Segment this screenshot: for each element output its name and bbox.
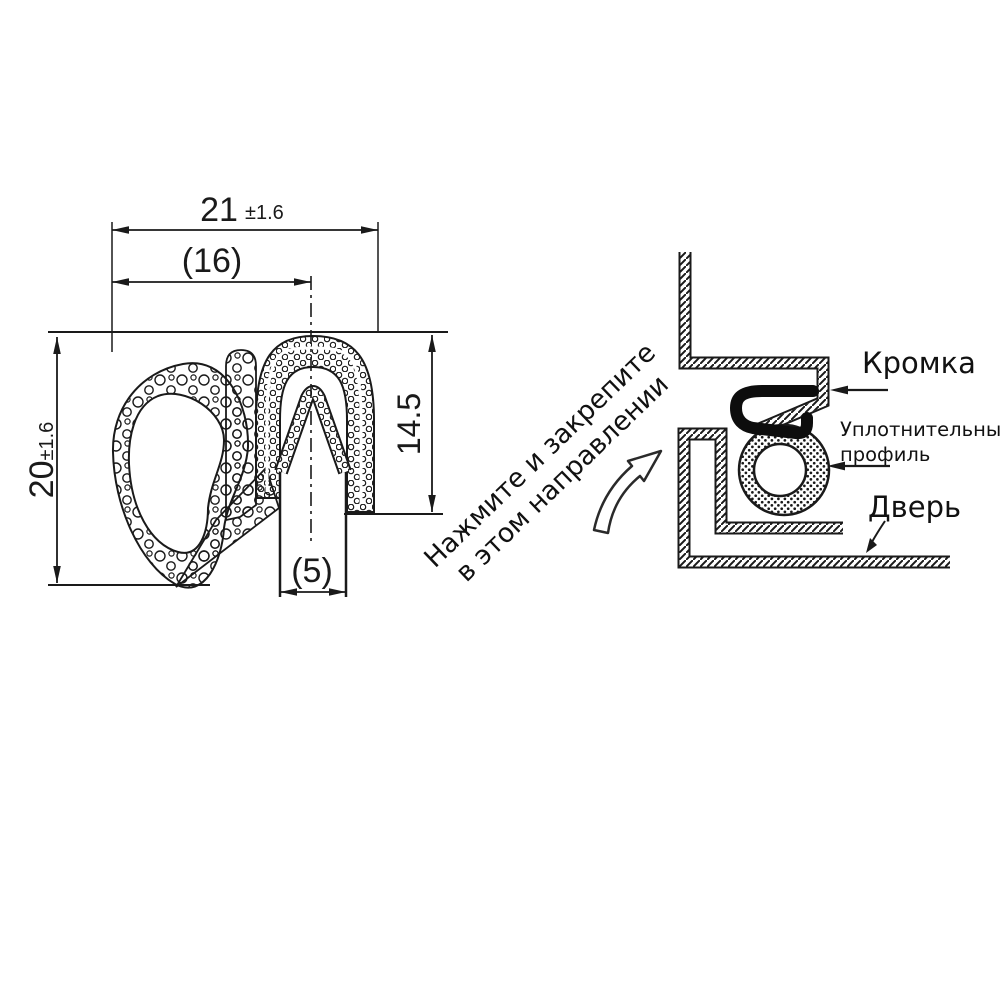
seal-bulb [739,425,829,515]
dim-width-total-tolerance: ±1.6 [245,202,284,224]
dim-width-ref: (16) [112,242,311,286]
label-edge: Кромка [862,346,976,380]
door-pointer-arrow [866,521,885,553]
instruction-line1: Нажмите и закрепите [418,337,662,574]
dim-slot-ref-label: (5) [291,552,333,590]
label-seal-line2: профиль [840,443,930,466]
cross-section-view: 21 ±1.6 (16) 20±1.6 14.5 [23,191,448,597]
dim-width-total: 21 ±1.6 [112,191,378,352]
dim-height-total: 20±1.6 [23,337,61,583]
frame-flange [685,252,823,430]
dim-slot-ref: (5) [280,552,346,596]
screenshot-root: 21 ±1.6 (16) 20±1.6 14.5 [0,0,1000,1000]
dim-height-u-label: 14.5 [391,393,427,455]
installation-view: Нажмите и закрепите в этом направлении К… [418,252,1000,597]
dim-height-u: 14.5 [391,335,436,512]
dim-width-ref-label: (16) [182,242,242,280]
dim-height-total-label: 20±1.6 [23,422,61,499]
edge-pointer-arrow [830,386,888,395]
dim-width-total-label: 21 [200,191,238,229]
press-arrow [594,451,661,533]
seal-profile-diagram: 21 ±1.6 (16) 20±1.6 14.5 [0,0,1000,1000]
label-seal-line1: Уплотнительный [840,418,1000,441]
gripper-fins [281,392,345,472]
label-door: Дверь [868,490,961,524]
